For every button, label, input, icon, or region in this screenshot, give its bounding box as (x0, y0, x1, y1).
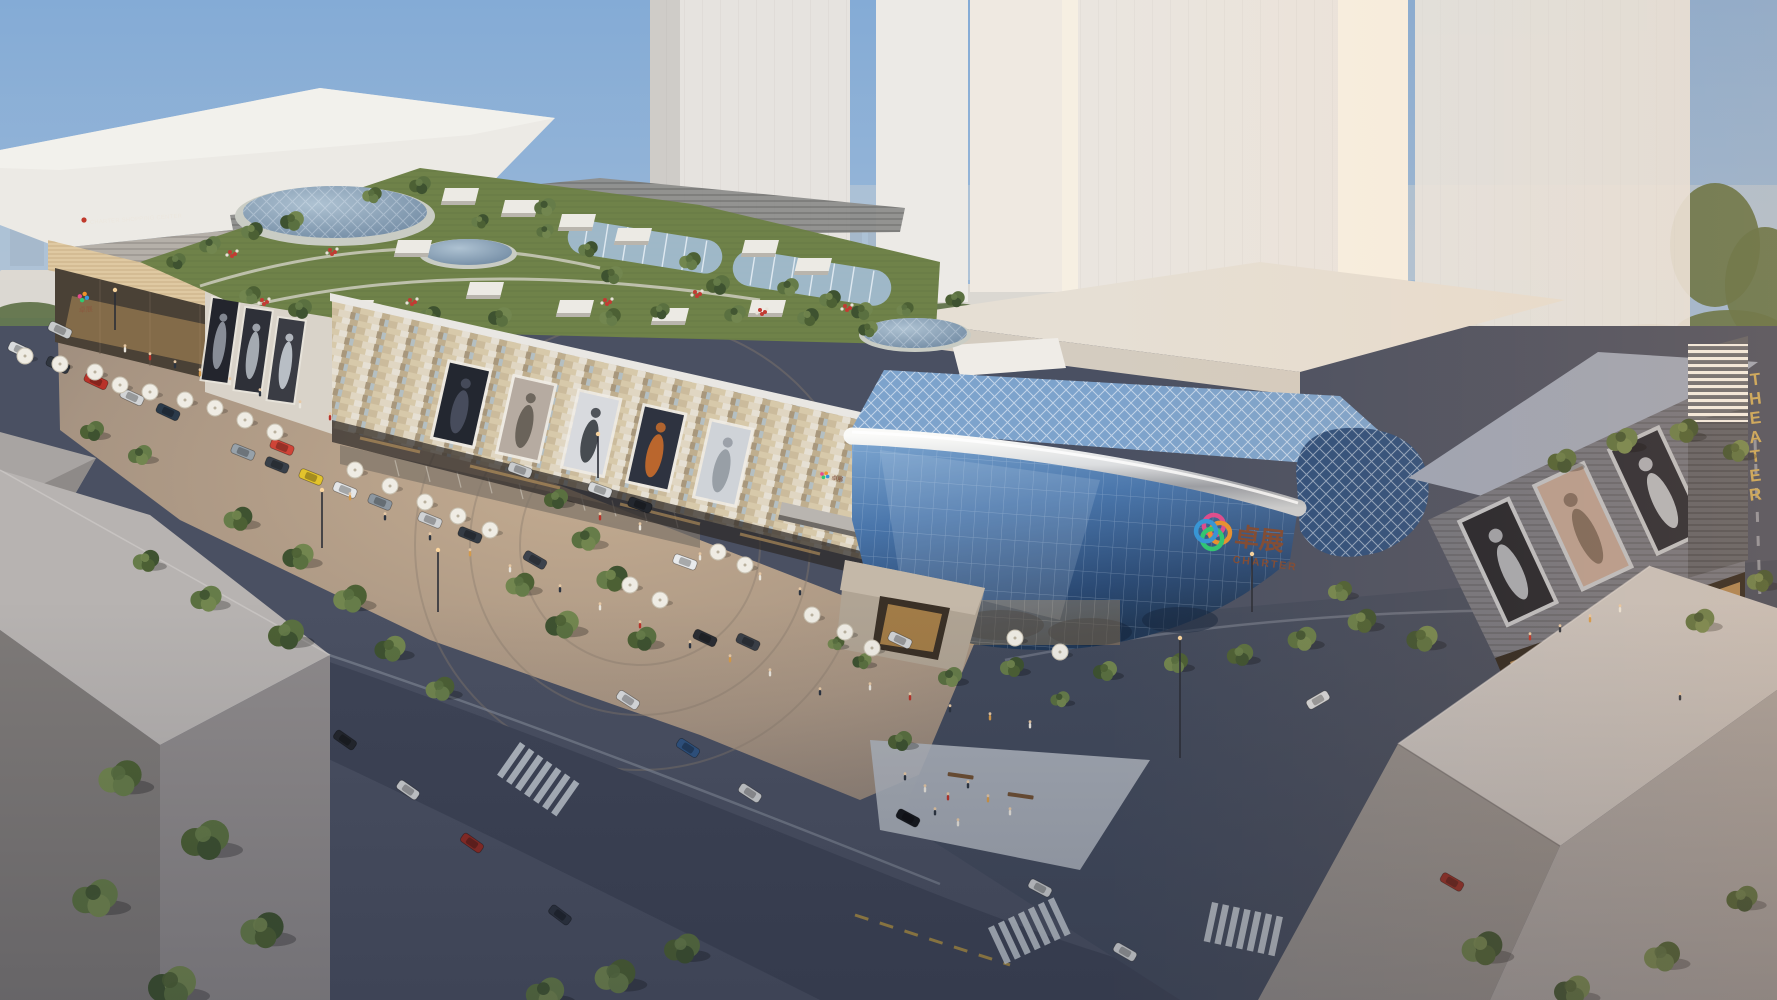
architectural-rendering: CHARTER SHOPPING CENTER 卓展 (0, 0, 1777, 1000)
lighting-overlay (0, 0, 1777, 1000)
